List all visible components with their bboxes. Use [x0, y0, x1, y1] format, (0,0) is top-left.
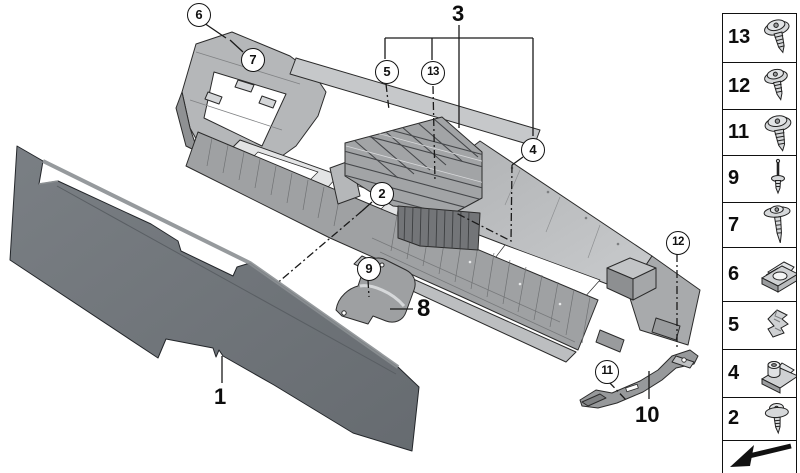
continue-arrow-icon	[723, 442, 796, 472]
callout-7[interactable]: 7	[241, 48, 265, 72]
callout-5[interactable]: 5	[375, 60, 399, 84]
legend-number: 11	[723, 121, 756, 144]
parts-diagram-page: 6 7 5 13 4 2 9 12 11 3 8 1 10 13	[0, 0, 800, 473]
pan-head-screw-icon	[756, 64, 796, 108]
callout-11[interactable]: 11	[595, 360, 619, 384]
legend-row-2[interactable]: 2	[723, 398, 796, 442]
callout-1[interactable]: 1	[214, 386, 226, 408]
legend-row-5[interactable]: 5	[723, 302, 796, 350]
clip-nut-collar-icon	[756, 351, 796, 395]
clip-nut-icon	[756, 250, 796, 300]
spring-clip-icon	[756, 303, 796, 347]
legend-row-13[interactable]: 13	[723, 14, 796, 63]
legend-number: 5	[723, 314, 756, 337]
legend-row-continue[interactable]	[723, 441, 796, 473]
legend-row-6[interactable]: 6	[723, 248, 796, 302]
legend-number: 12	[723, 75, 756, 98]
legend-row-9[interactable]: 9	[723, 156, 796, 203]
pan-head-screw-icon	[756, 112, 796, 154]
legend-number: 6	[723, 263, 756, 286]
legend-row-4[interactable]: 4	[723, 350, 796, 398]
legend-row-7[interactable]: 7	[723, 203, 796, 249]
callout-12[interactable]: 12	[666, 231, 690, 255]
callout-6[interactable]: 6	[187, 3, 211, 27]
legend-row-11[interactable]: 11	[723, 110, 796, 156]
callout-4[interactable]: 4	[521, 138, 545, 162]
callout-2[interactable]: 2	[370, 182, 394, 206]
legend-row-12[interactable]: 12	[723, 63, 796, 111]
legend-number: 13	[723, 26, 756, 49]
callout-9[interactable]: 9	[357, 257, 381, 281]
pan-head-screw-icon	[756, 15, 796, 60]
callout-13[interactable]: 13	[421, 61, 445, 85]
washer-head-screw-icon	[756, 203, 796, 247]
legend-number: 9	[723, 167, 756, 190]
callout-3[interactable]: 3	[452, 3, 464, 25]
callout-8[interactable]: 8	[417, 297, 430, 321]
blind-rivet-icon	[756, 157, 796, 200]
legend-number: 4	[723, 362, 756, 385]
legend-number: 2	[723, 407, 756, 430]
fastener-legend: 13 12	[722, 13, 797, 473]
washer-screw-icon	[756, 399, 796, 439]
legend-number: 7	[723, 214, 756, 237]
callout-10[interactable]: 10	[635, 404, 659, 426]
